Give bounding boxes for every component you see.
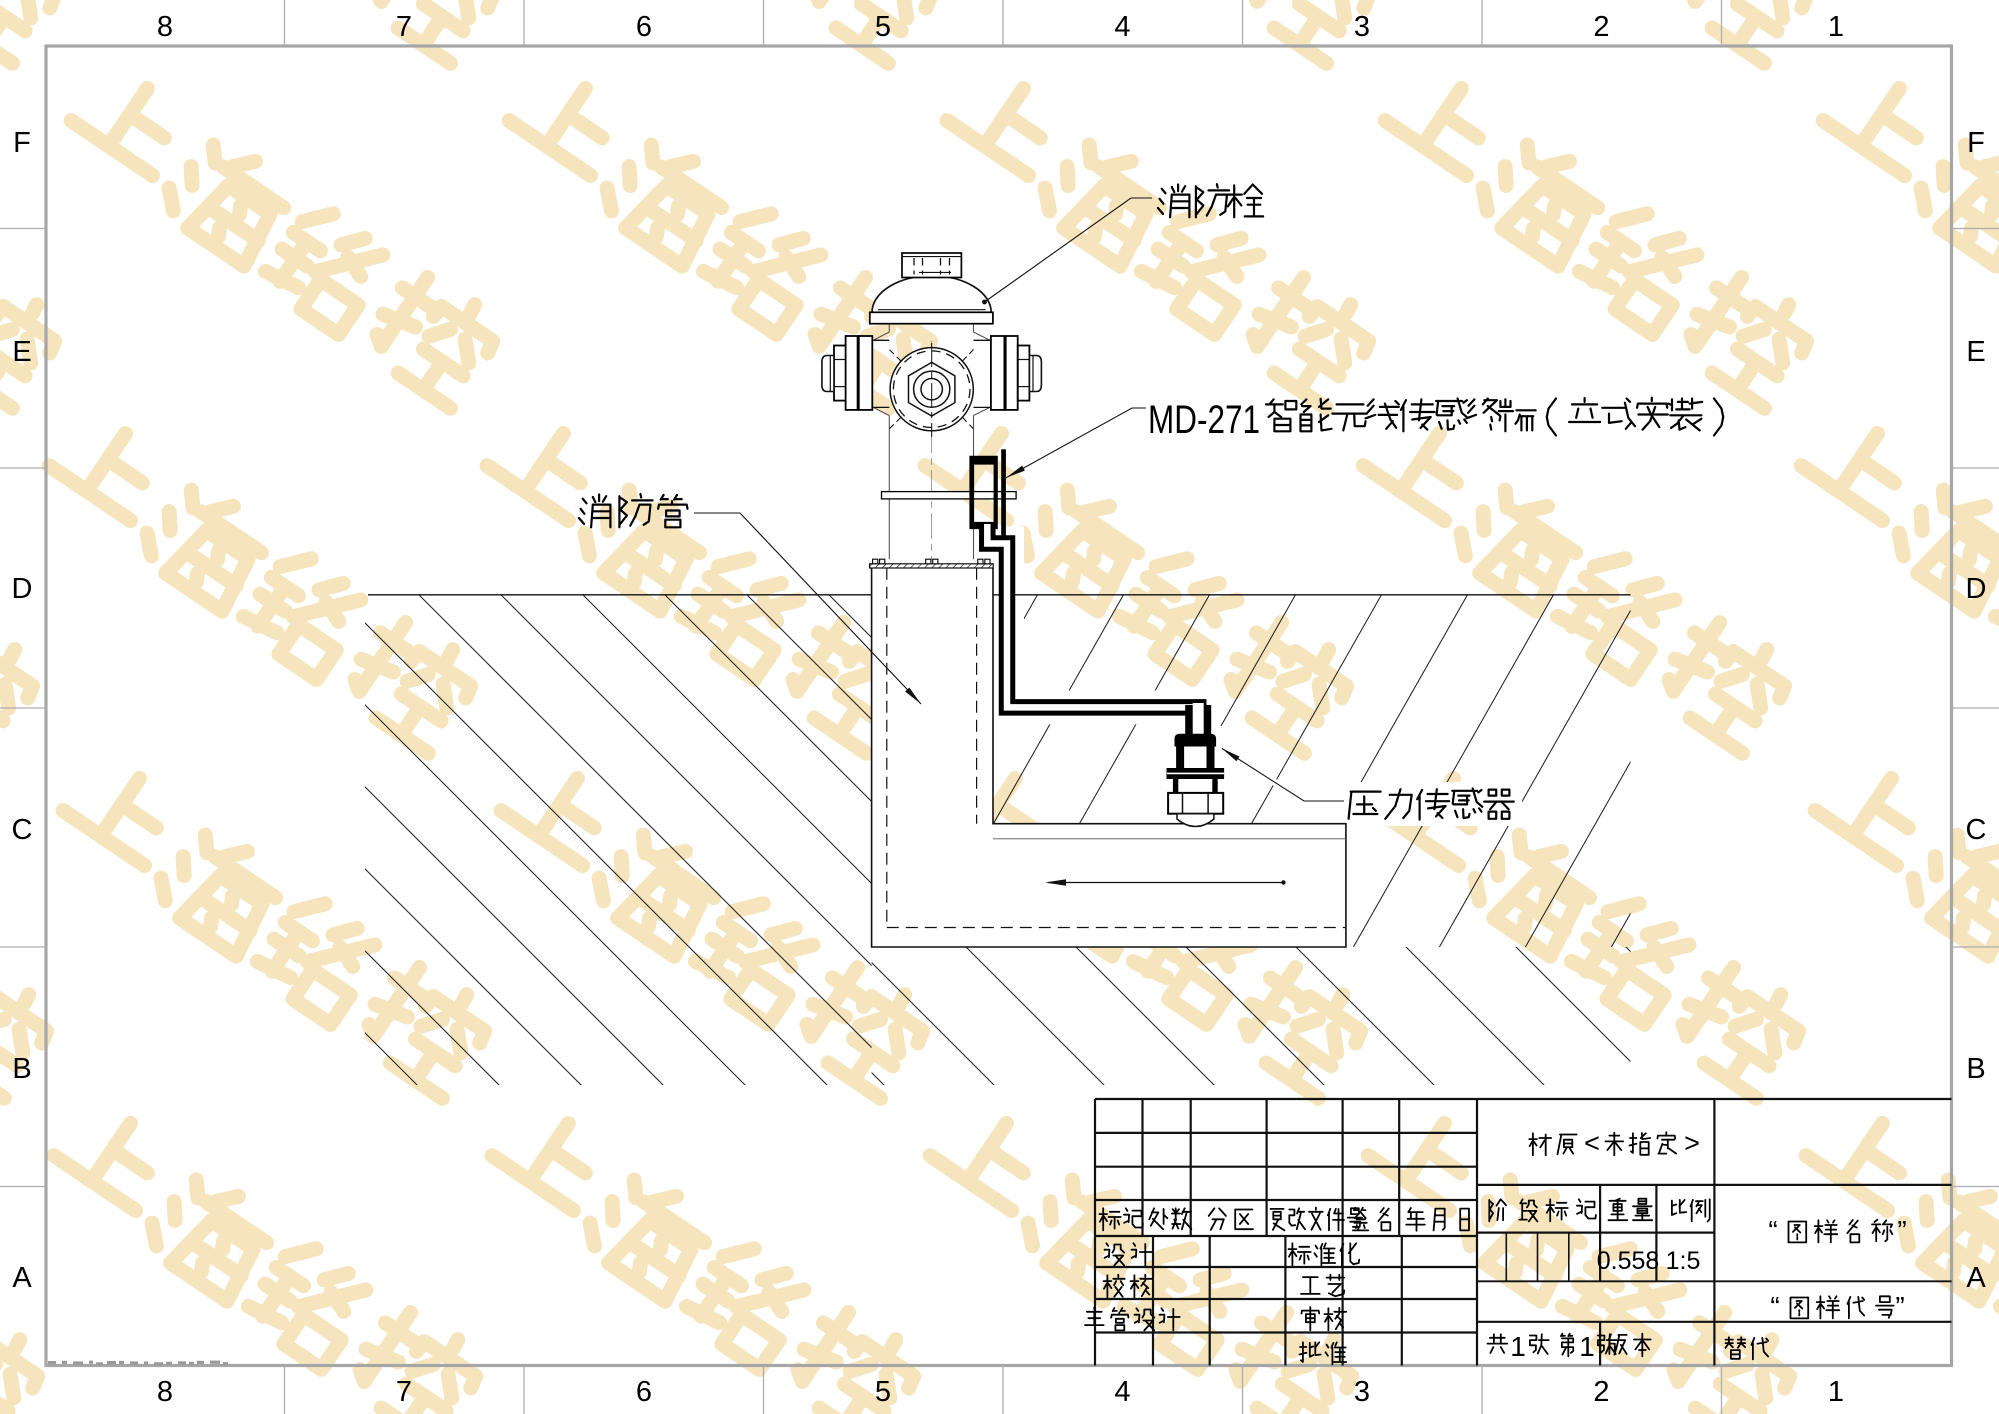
- svg-text:4: 4: [1114, 1376, 1130, 1408]
- svg-text:2: 2: [1593, 11, 1609, 43]
- svg-text:6: 6: [636, 11, 652, 43]
- svg-text:2: 2: [1593, 1376, 1609, 1408]
- svg-text:1:5: 1:5: [1666, 1247, 1701, 1275]
- svg-text:D: D: [12, 573, 33, 605]
- svg-text:3: 3: [1354, 1376, 1370, 1408]
- svg-text:B: B: [1966, 1053, 1985, 1085]
- svg-text:6: 6: [636, 1376, 652, 1408]
- svg-text:7: 7: [396, 11, 412, 43]
- svg-text:5: 5: [875, 1376, 891, 1408]
- svg-text:0.558: 0.558: [1597, 1247, 1660, 1275]
- svg-text:1: 1: [1510, 1331, 1526, 1362]
- svg-text:1: 1: [1828, 11, 1844, 43]
- svg-text:”: ”: [1895, 1291, 1904, 1322]
- svg-text:7: 7: [396, 1376, 412, 1408]
- svg-text:E: E: [1966, 336, 1985, 368]
- svg-text:D: D: [1966, 573, 1987, 605]
- svg-text:8: 8: [157, 1376, 173, 1408]
- svg-text:“: “: [1770, 1291, 1779, 1322]
- svg-text:1: 1: [1828, 1376, 1844, 1408]
- svg-text:4: 4: [1114, 11, 1130, 43]
- svg-text:F: F: [1967, 127, 1985, 159]
- svg-text:C: C: [12, 814, 33, 846]
- svg-text:B: B: [12, 1053, 31, 1085]
- svg-text:3: 3: [1354, 11, 1370, 43]
- svg-text:8: 8: [157, 11, 173, 43]
- svg-text:1: 1: [1579, 1331, 1595, 1362]
- svg-text:>: >: [1684, 1128, 1700, 1158]
- svg-text:MD-271: MD-271: [1148, 398, 1260, 442]
- svg-text:F: F: [13, 127, 31, 159]
- svg-text:A: A: [12, 1262, 32, 1294]
- svg-text:“: “: [1768, 1215, 1777, 1246]
- svg-text:C: C: [1966, 814, 1987, 846]
- svg-text:5: 5: [875, 11, 891, 43]
- svg-text:<: <: [1584, 1128, 1600, 1158]
- svg-text:A: A: [1966, 1262, 1986, 1294]
- svg-text:E: E: [12, 336, 31, 368]
- svg-text:”: ”: [1897, 1215, 1906, 1246]
